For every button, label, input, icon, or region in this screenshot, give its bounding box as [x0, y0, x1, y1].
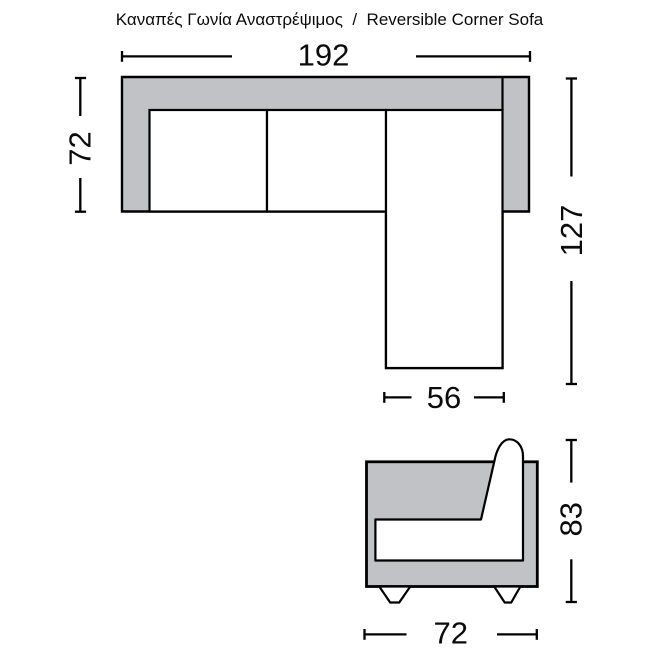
svg-text:192: 192 — [298, 38, 350, 73]
svg-text:56: 56 — [427, 380, 461, 415]
svg-text:72: 72 — [63, 131, 98, 165]
svg-text:Καναπές Γωνία Αναστρέψιμος /: Καναπές Γωνία Αναστρέψιμος / Reversible … — [116, 10, 544, 29]
svg-text:127: 127 — [554, 205, 589, 257]
svg-text:83: 83 — [554, 502, 589, 536]
svg-text:72: 72 — [434, 616, 468, 650]
